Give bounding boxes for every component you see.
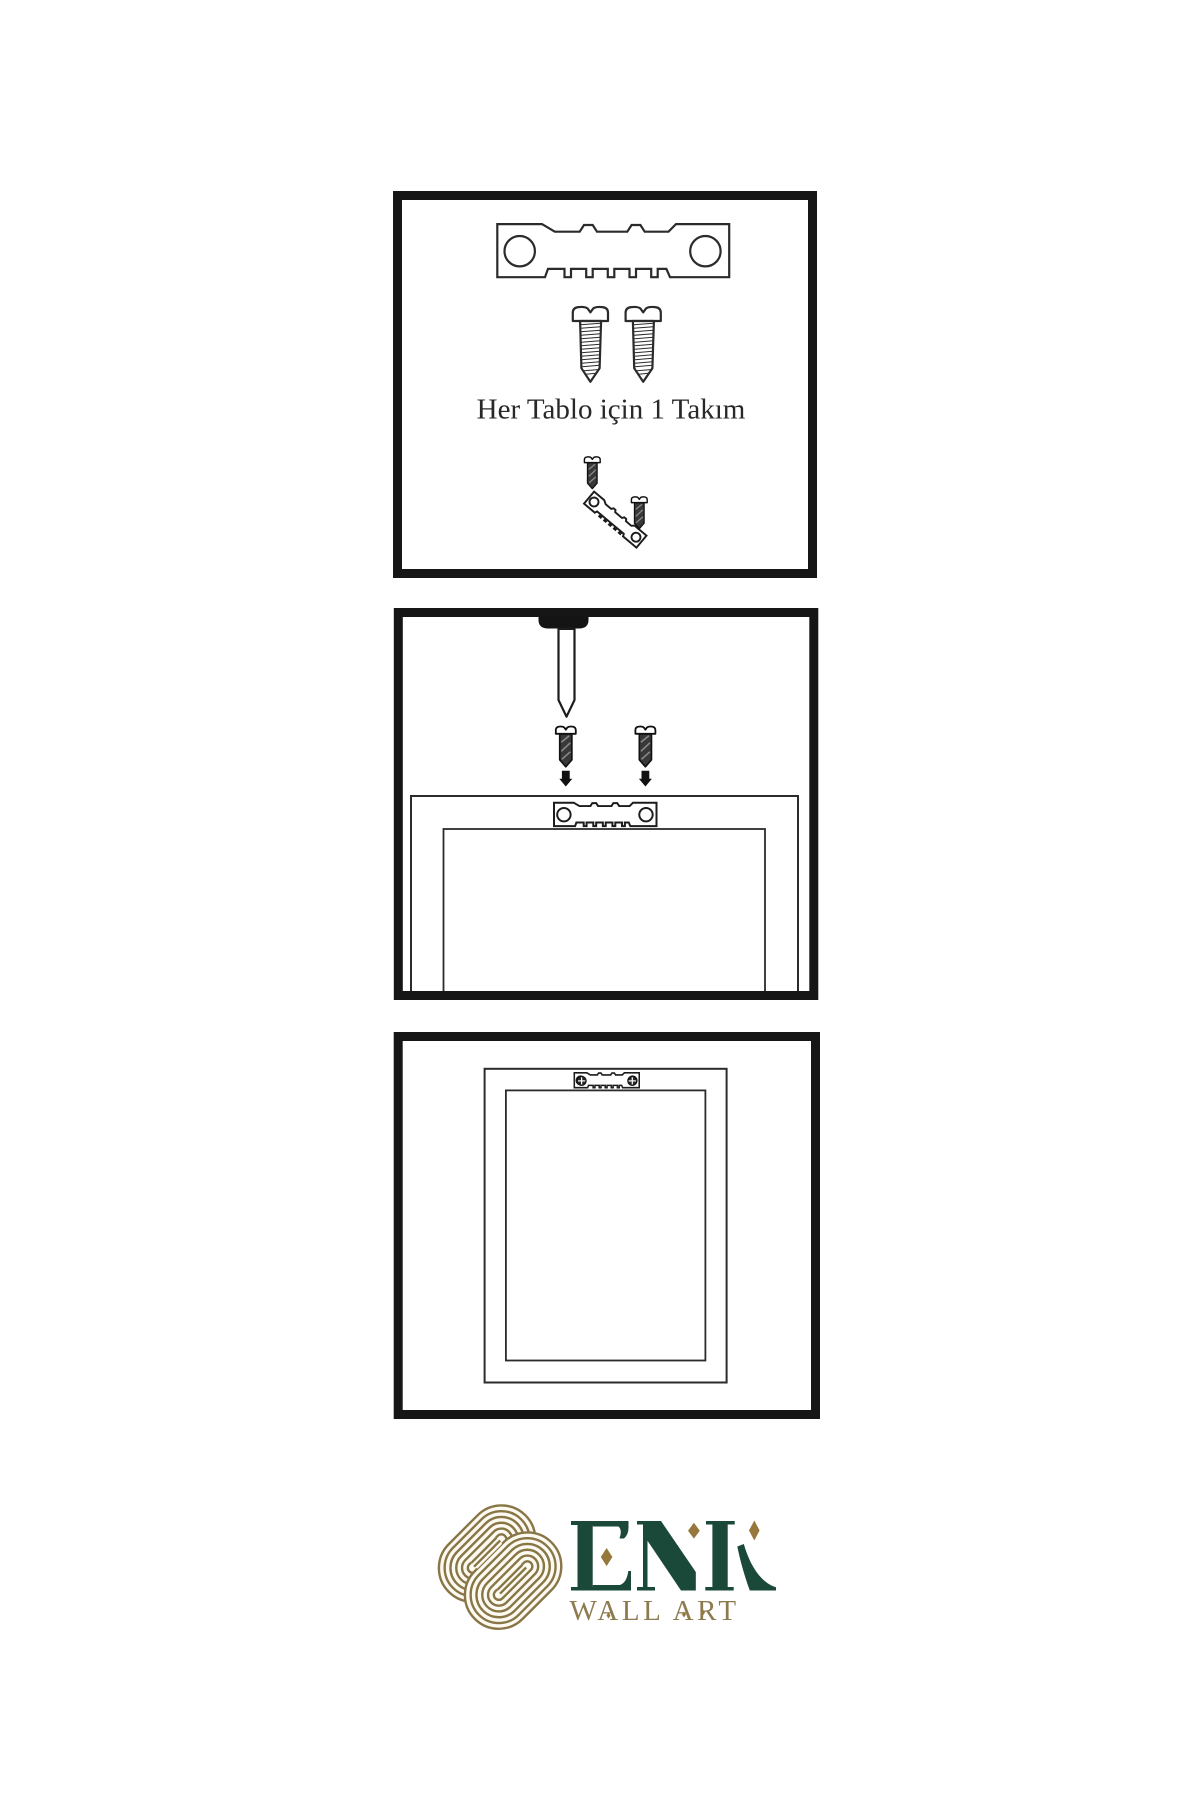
svg-text:Her Tablo için 1 Takım: Her Tablo için 1 Takım — [477, 394, 746, 426]
